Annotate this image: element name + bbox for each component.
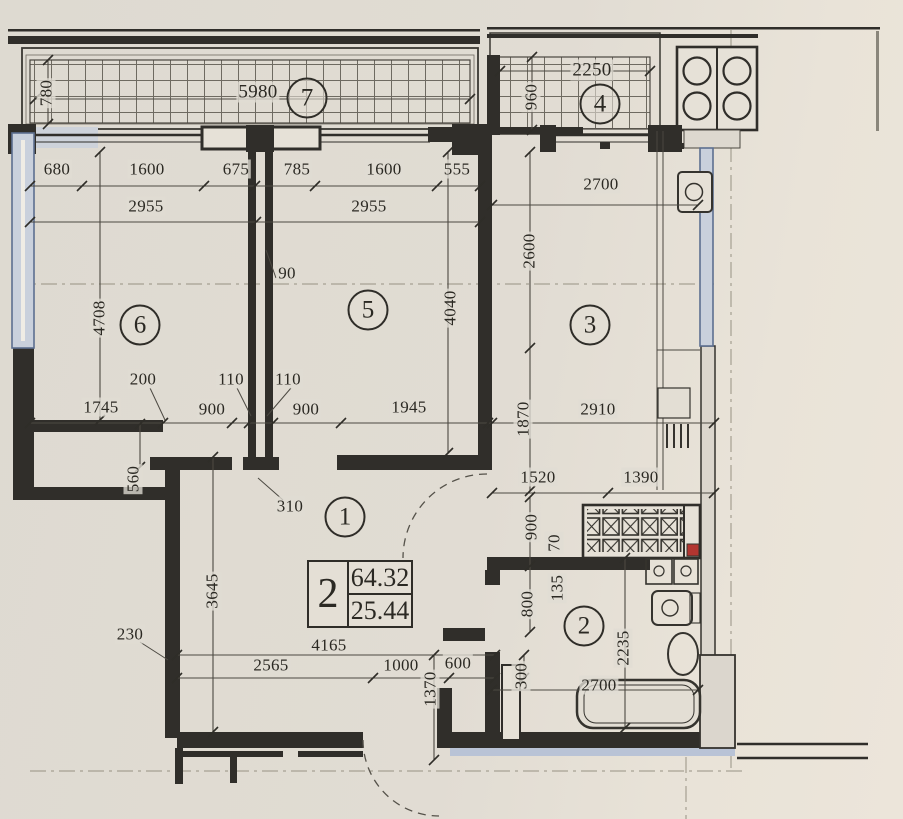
dim-600: 600 [443,654,473,673]
room-circle-balcony-living: 7 [287,78,328,119]
dim-560: 560 [124,464,143,494]
room-circle-bedroom: 6 [120,305,161,346]
dim-room5-width: 2955 [349,197,388,216]
vent-shaft-block [677,47,757,148]
dim-785: 785 [282,160,312,179]
dim-900a: 900 [197,400,227,419]
washbasin [652,591,692,625]
kitchen-sink [678,172,712,212]
dim-balcony4-width: 2250 [570,60,613,81]
bathroom-fixtures [577,559,700,728]
dim-900b: 900 [291,400,321,419]
dim-800: 800 [518,589,537,619]
dim-balcony4-depth: 960 [522,82,541,112]
dim-70: 70 [545,532,564,554]
dim-90: 90 [276,264,298,283]
area-living: 25.44 [349,595,411,626]
dim-room5-height: 4040 [441,288,460,327]
dim-680: 680 [42,160,72,179]
dim-1600b: 1600 [364,160,403,179]
area-rooms-count: 2 [309,562,349,626]
dim-1945: 1945 [389,398,428,417]
dim-kitchen-top: 2700 [581,175,620,194]
room-circle-hall: 1 [325,497,366,538]
plan-drawing [0,0,903,819]
area-total: 64.32 [349,562,411,595]
dim-200: 200 [128,370,158,389]
dim-110a: 110 [216,370,246,389]
balcony-kitchen-hatch [487,33,660,135]
dim-230: 230 [115,625,145,644]
room-circle-living: 5 [348,290,389,331]
dim-room6-height: 4708 [90,298,109,337]
dim-1000: 1000 [381,656,420,675]
dim-310: 310 [275,497,305,516]
wardrobe-cabinet [583,505,700,558]
radiator [667,424,688,448]
floor-plan: 780 5980 2250 960 680 1600 675 785 1600 … [0,0,903,819]
room-circle-kitchen: 3 [570,305,611,346]
dim-balcony7-width: 5980 [236,82,279,103]
dim-4165: 4165 [309,636,348,655]
room-circle-balcony-kitchen: 4 [580,84,621,125]
dim-900v: 900 [522,512,541,542]
door-arcs [363,474,487,816]
dim-1520: 1520 [518,468,557,487]
dim-2565: 2565 [251,656,290,675]
dim-2235: 2235 [614,628,633,667]
stove [658,388,690,418]
area-table: 2 64.32 25.44 [307,560,413,628]
dim-balcony7-depth: 780 [37,78,56,108]
dim-1390: 1390 [621,468,660,487]
dim-1745: 1745 [81,398,120,417]
dim-135: 135 [548,573,567,603]
shelf [674,559,698,584]
red-marker [687,544,699,556]
dim-1600a: 1600 [127,160,166,179]
kitchen-door-arc [403,474,487,558]
entry-door-arc [363,740,439,816]
dim-2910: 2910 [578,400,617,419]
dim-1870: 1870 [514,399,533,438]
dim-3645: 3645 [203,571,222,610]
dim-675: 675 [221,160,251,179]
toilet [668,633,698,675]
dim-555: 555 [442,160,472,179]
dim-2600: 2600 [520,231,539,270]
dim-110b: 110 [273,370,303,389]
dim-1370: 1370 [421,669,440,708]
dim-300: 300 [512,661,531,691]
dim-room6-width: 2955 [126,197,165,216]
room-circle-bathroom: 2 [564,606,605,647]
dim-bath-2700: 2700 [579,676,618,695]
